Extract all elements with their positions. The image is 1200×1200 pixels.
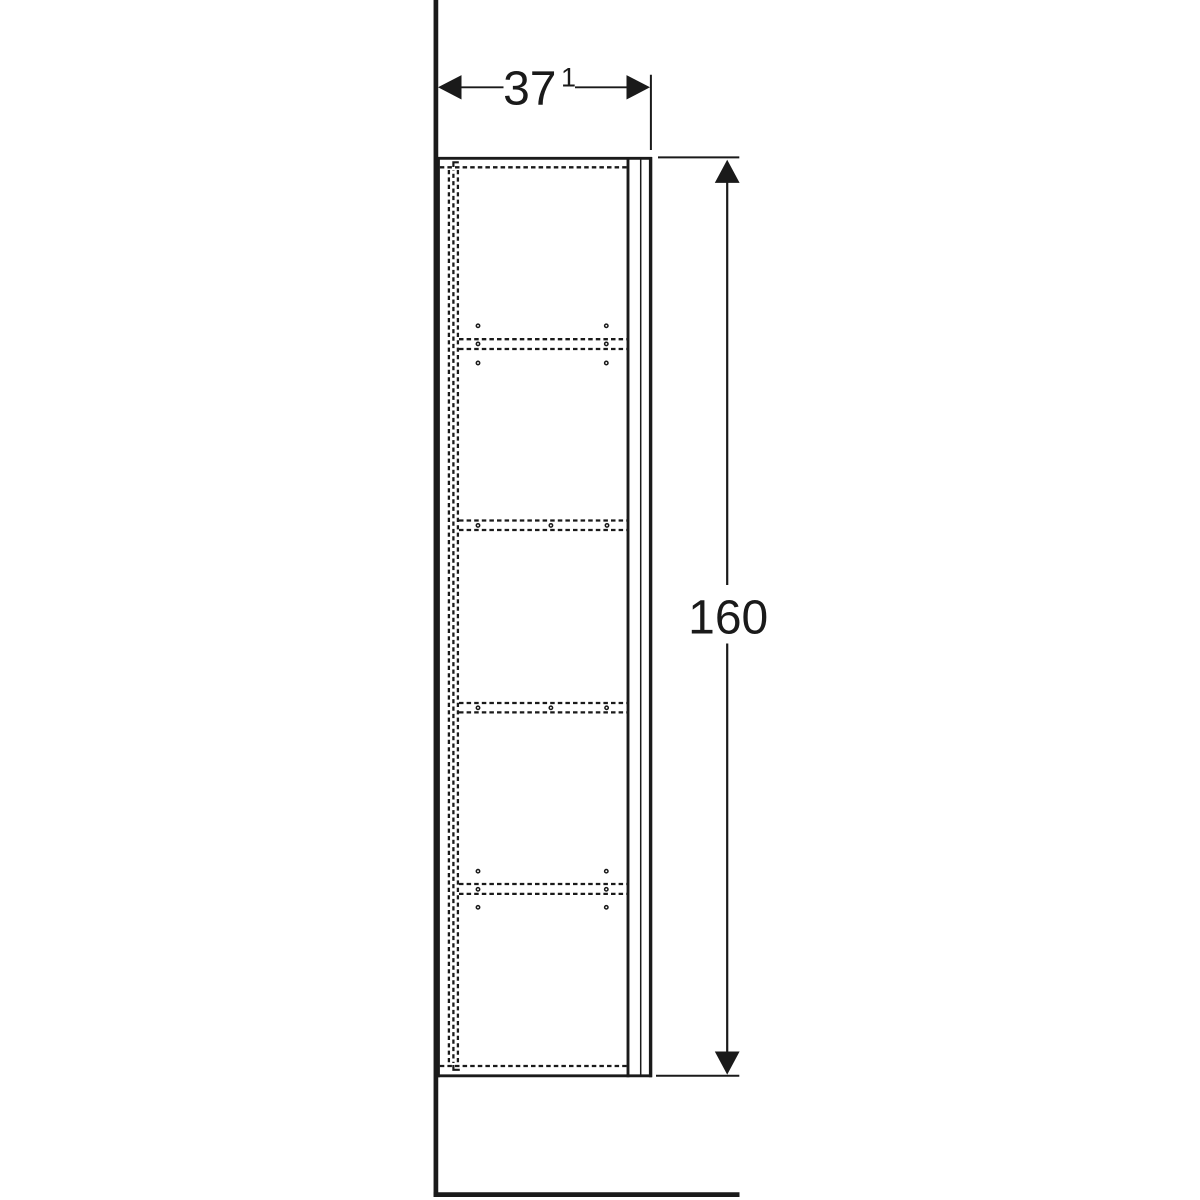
svg-text:37: 37 [503,62,556,115]
svg-text:1: 1 [561,63,576,93]
svg-text:160: 160 [688,592,768,645]
